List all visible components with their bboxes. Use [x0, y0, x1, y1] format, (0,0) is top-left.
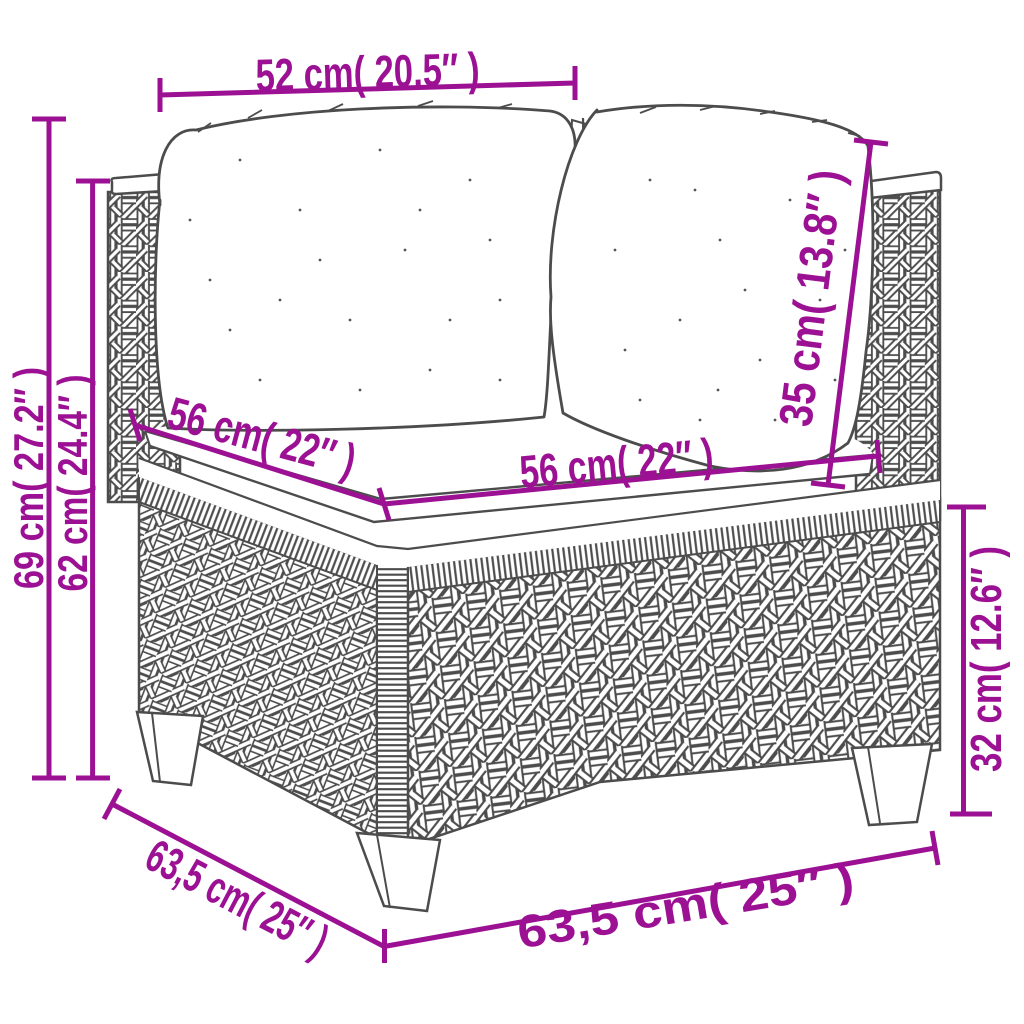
- svg-text:62 cm( 24.4″ ): 62 cm( 24.4″ ): [49, 375, 96, 592]
- svg-text:52 cm( 20.5″ ): 52 cm( 20.5″ ): [255, 43, 481, 102]
- svg-text:32 cm( 12.6″ ): 32 cm( 12.6″ ): [962, 546, 1011, 772]
- svg-text:69 cm( 27.2″ ): 69 cm( 27.2″ ): [5, 367, 52, 589]
